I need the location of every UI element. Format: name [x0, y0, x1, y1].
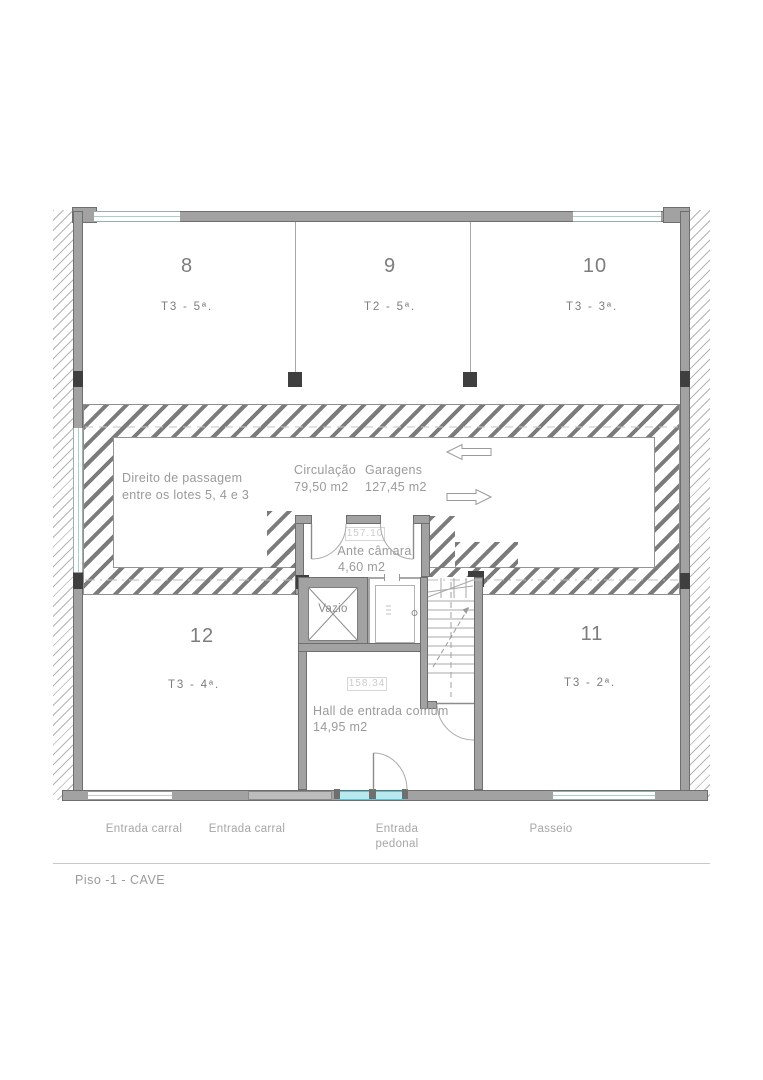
- elevator-knob-icon: [412, 611, 417, 616]
- stair-winder-treads: [441, 578, 466, 598]
- arrow-left-icon: [447, 445, 491, 460]
- floor-plan-page: 157.10 Ante câmara 4,60 m2 Vazio 158.34 …: [0, 0, 763, 1080]
- void-cross-icon: [308, 587, 358, 641]
- arrow-right-icon: [447, 490, 491, 505]
- door-swing-arc: [374, 753, 408, 790]
- elevator-text-marks: [386, 606, 391, 614]
- door-swing-arc: [312, 524, 347, 559]
- door-swing-arc: [437, 704, 474, 741]
- plan-linework: [0, 0, 763, 1080]
- door-swing-arc: [381, 524, 414, 559]
